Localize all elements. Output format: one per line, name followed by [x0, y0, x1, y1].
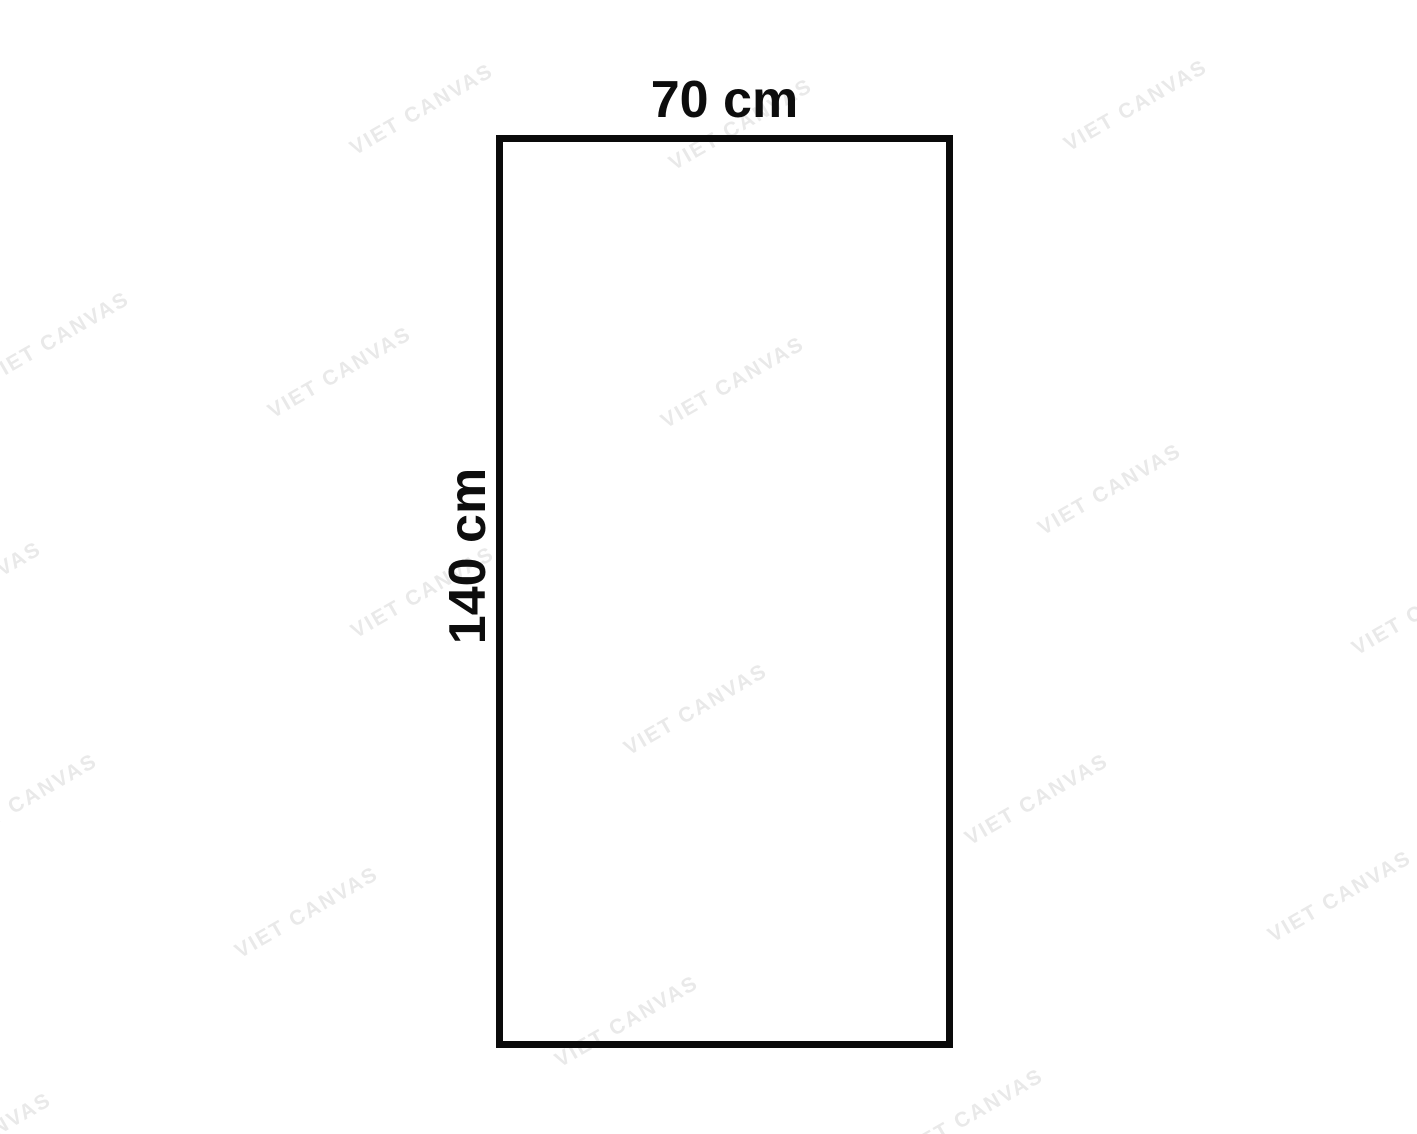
height-dimension-label: 140 cm [441, 451, 495, 661]
rectangle-outline [496, 135, 953, 1048]
canvas-size-diagram: VIET CANVAS VIET CANVAS VIET CANVAS VIET… [0, 0, 1417, 1134]
width-dimension-label: 70 cm [496, 72, 953, 128]
diagram-layer: 70 cm 140 cm [0, 0, 1417, 1134]
